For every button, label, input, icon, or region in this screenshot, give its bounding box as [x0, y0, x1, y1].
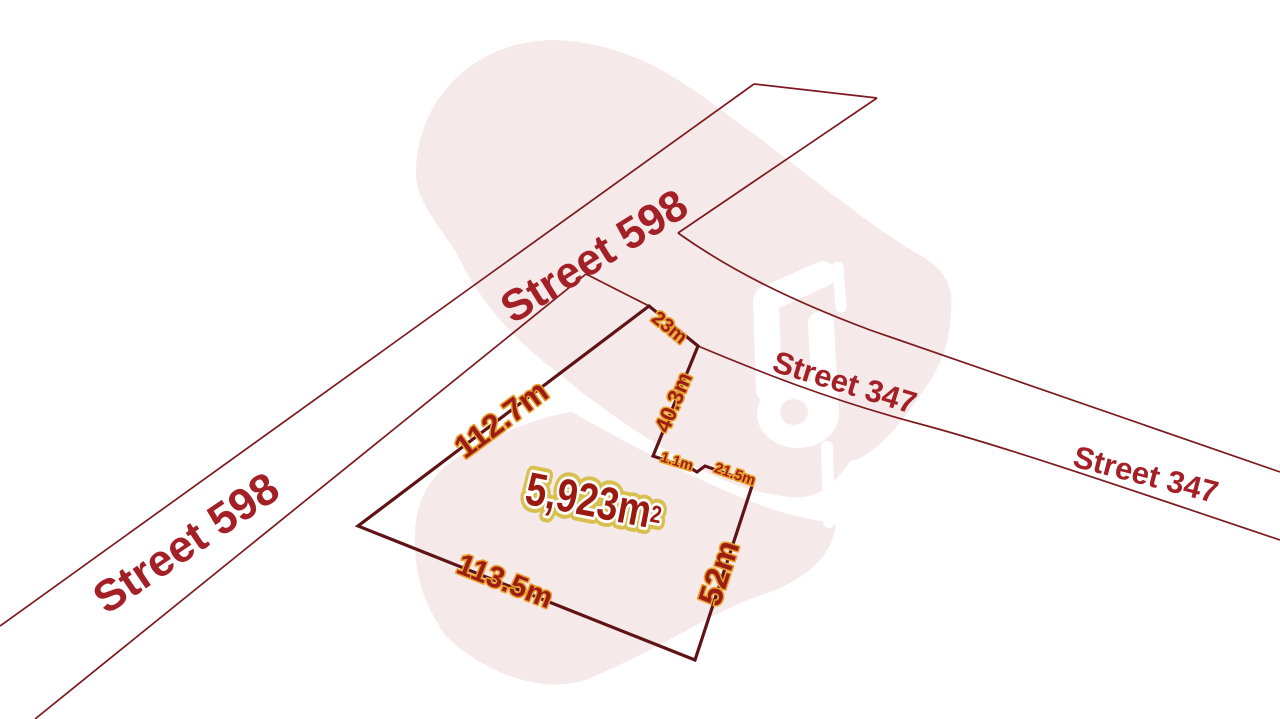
svg-text:Street 347: Street 347: [1070, 439, 1222, 510]
